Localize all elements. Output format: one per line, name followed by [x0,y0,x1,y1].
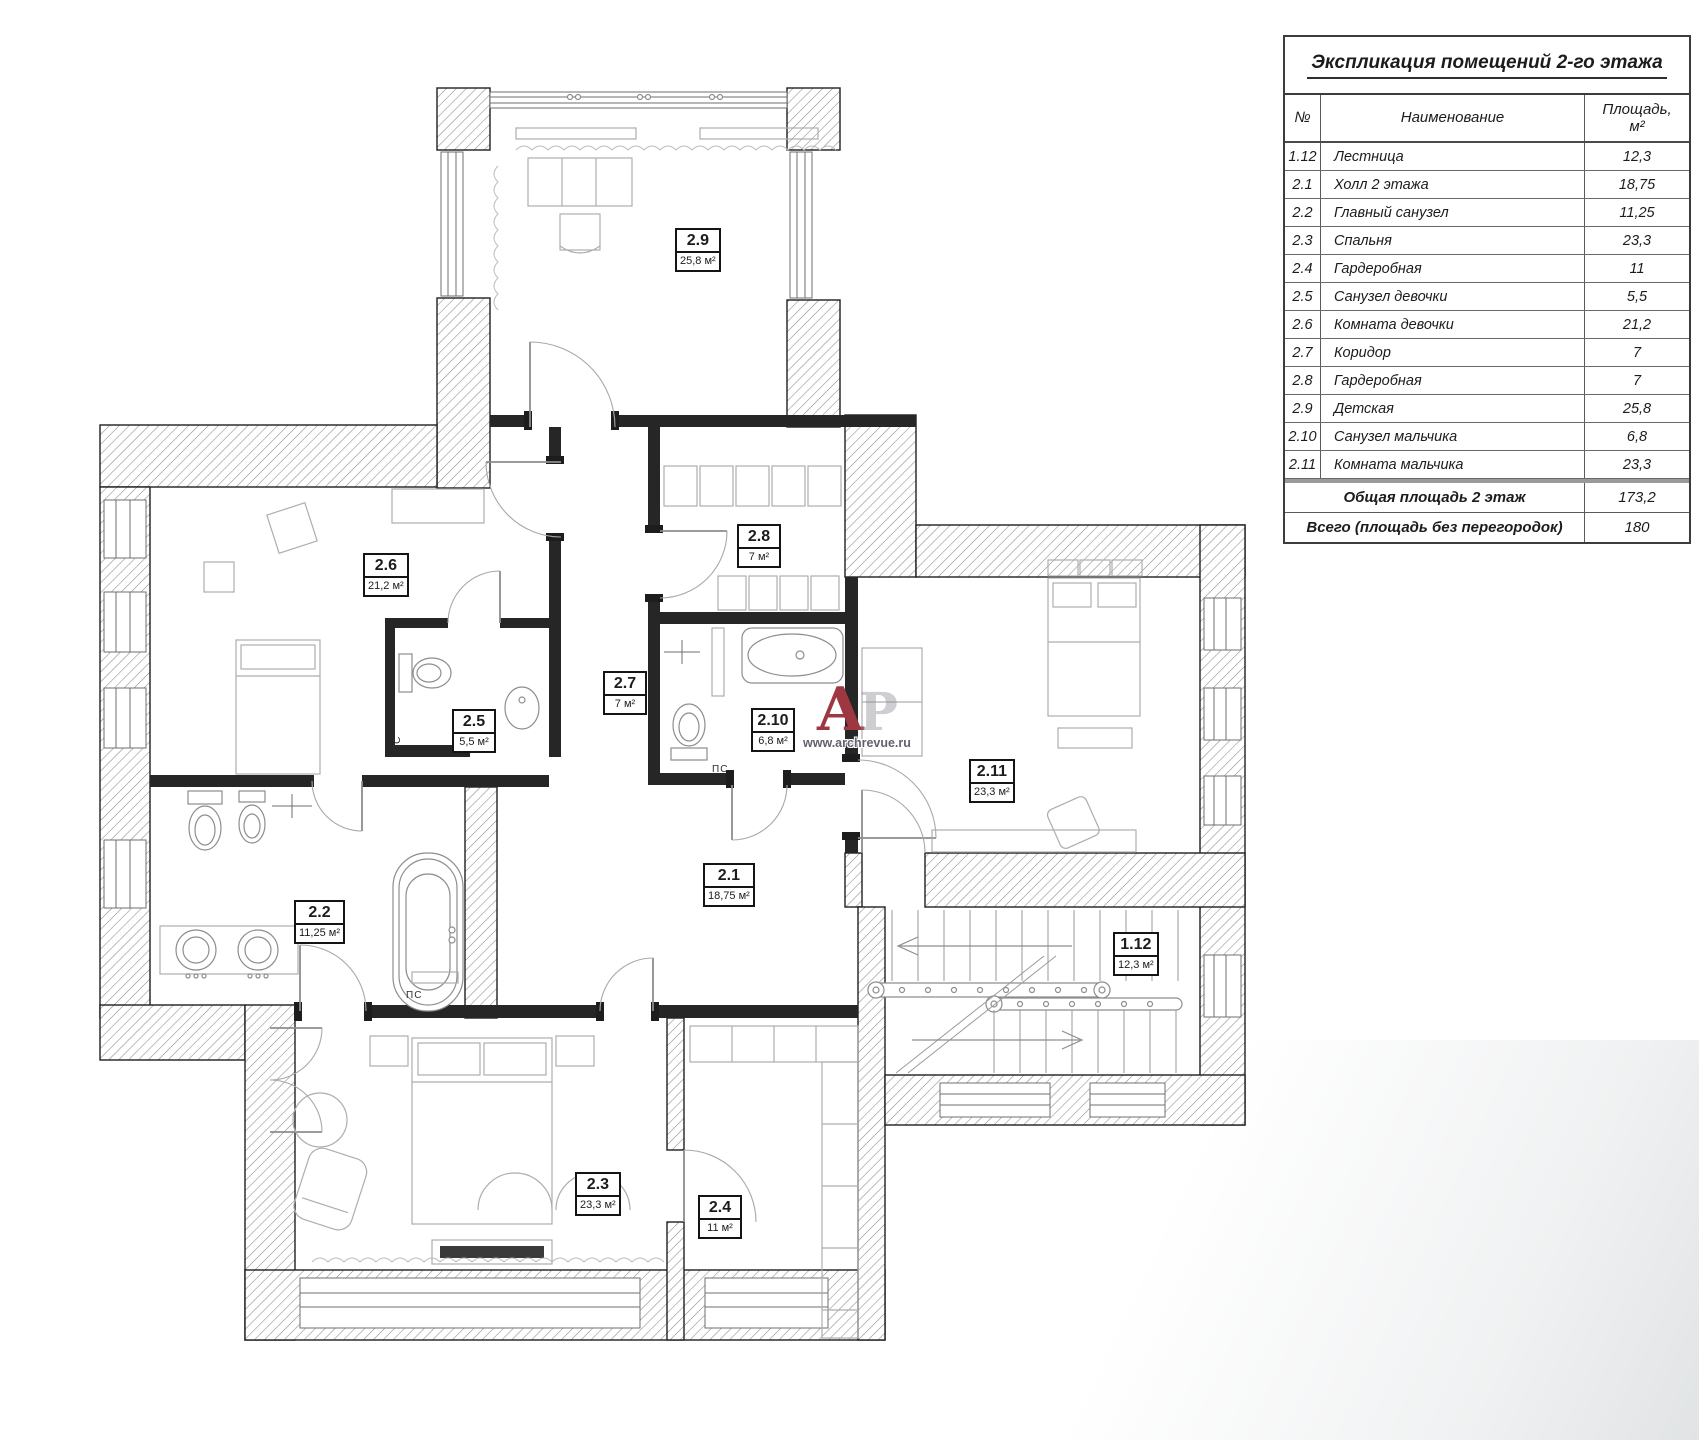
table-row: 2.6 Комната девочки 21,2 [1285,311,1689,339]
watermark-letter-r: Р [859,682,898,743]
room-label-2-10: 2.106,8 м² [751,708,795,752]
room-label-2-4: 2.411 м² [698,1195,742,1239]
paper-shading [899,1040,1699,1440]
ps-annotation: ПС [712,764,728,775]
table-row: 2.8 Гардеробная 7 [1285,367,1689,395]
ps-annotation: ПС [392,736,403,752]
room-label-2-3: 2.323,3 м² [575,1172,621,1216]
room-2-3-furniture [290,1036,664,1264]
table-row: 1.12 Лестница 12,3 [1285,143,1689,171]
table-title: Экспликация помещений 2-го этажа [1285,37,1689,95]
room-label-2-2: 2.211,25 м² [294,900,345,944]
header-name: Наименование [1321,95,1585,141]
table-row: 2.5 Санузел девочки 5,5 [1285,283,1689,311]
total-row: Всего (площадь без перегородок) 180 [1285,512,1689,542]
table-row: 2.7 Коридор 7 [1285,339,1689,367]
ps-annotation: ПС [406,990,422,1001]
table-row: 2.3 Спальня 23,3 [1285,227,1689,255]
table-row: 2.1 Холл 2 этажа 18,75 [1285,171,1689,199]
drawing-sheet: ПС ПС [0,0,1699,1440]
room-label-2-1: 2.118,75 м² [703,863,755,907]
room-label-2-8: 2.87 м² [737,524,781,568]
room-label-2-9: 2.925,8 м² [675,228,721,272]
watermark-logo: АР [816,680,898,740]
table-row: 2.11 Комната мальчика 23,3 [1285,451,1689,479]
table-row: 2.9 Детская 25,8 [1285,395,1689,423]
room-2-6-furniture [204,489,484,774]
room-2-11-furniture [862,560,1142,852]
watermark-url: www.archrevue.ru [803,736,911,750]
room-label-2-7: 2.77 м² [603,671,647,715]
room-2-9-furniture [494,128,836,310]
table-totals: Общая площадь 2 этаж 173,2 Всего (площад… [1285,479,1689,542]
header-area: Площадь, м² [1585,95,1689,141]
table-header: № Наименование Площадь, м² [1285,95,1689,143]
total-row: Общая площадь 2 этаж 173,2 [1285,483,1689,512]
room-label-1-12: 1.1212,3 м² [1113,932,1159,976]
table-row: 2.10 Санузел мальчика 6,8 [1285,423,1689,451]
watermark-letter-a: А [816,675,865,745]
room-specification-table: Экспликация помещений 2-го этажа № Наиме… [1283,35,1691,544]
header-no: № [1285,95,1321,141]
room-label-2-11: 2.1123,3 м² [969,759,1015,803]
table-row: 2.2 Главный санузел 11,25 [1285,199,1689,227]
table-row: 2.4 Гардеробная 11 [1285,255,1689,283]
room-label-2-5: 2.55,5 м² [452,709,496,753]
room-label-2-6: 2.621,2 м² [363,553,409,597]
